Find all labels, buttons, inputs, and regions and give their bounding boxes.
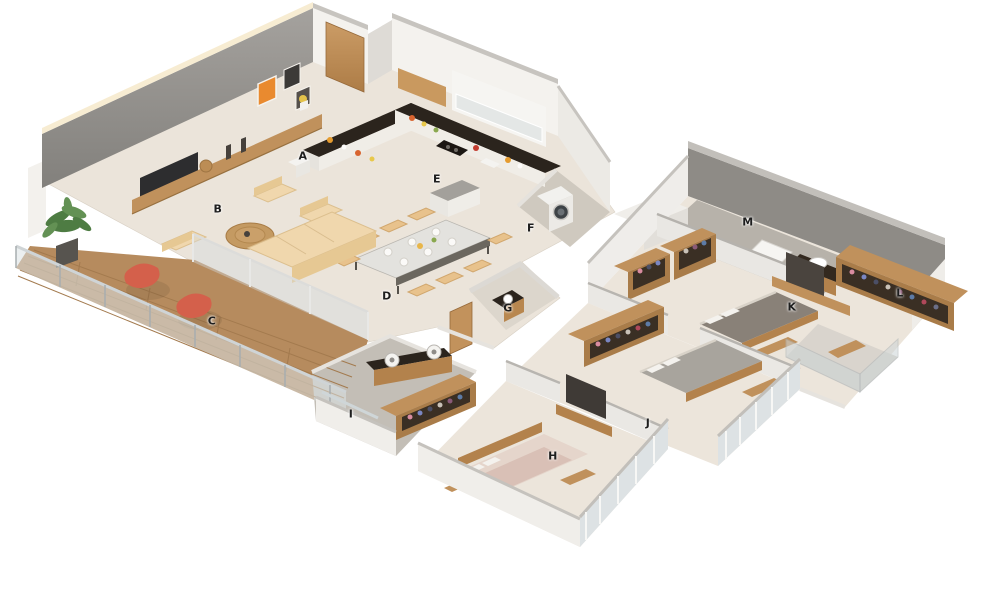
coffee-table-inner <box>235 227 265 243</box>
floorplan-image: ABCDEFGHIJKLM <box>0 0 1000 600</box>
burner-1 <box>446 145 450 149</box>
decor-sculpture-2 <box>241 137 246 153</box>
drain-1 <box>390 358 395 363</box>
drain-2 <box>432 350 437 355</box>
toilet-basin <box>504 295 513 304</box>
decor-sculpture-1 <box>226 144 231 160</box>
isometric-floorplan-render <box>0 0 1000 600</box>
burner-2 <box>454 148 458 152</box>
washer-door-glass <box>558 209 565 216</box>
table-decor <box>244 231 250 237</box>
decor-basket <box>200 160 212 172</box>
